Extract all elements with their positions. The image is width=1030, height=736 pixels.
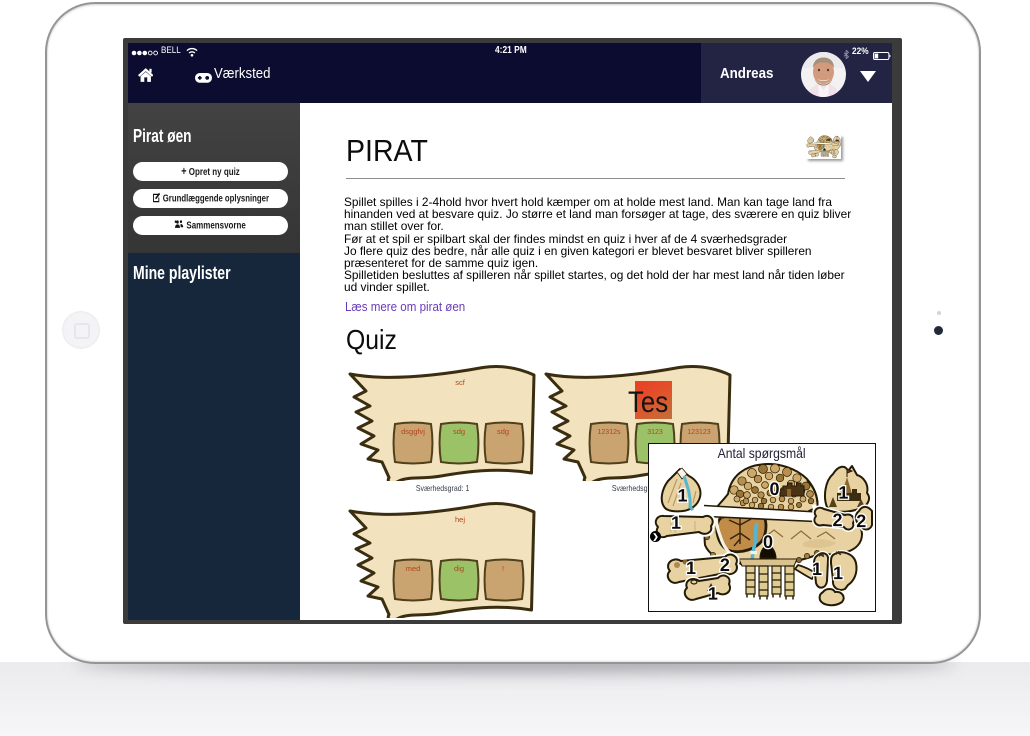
svg-text:sdg: sdg — [452, 427, 464, 436]
svg-text:sdg: sdg — [496, 427, 508, 436]
svg-text:!: ! — [501, 564, 503, 573]
svg-text:123123: 123123 — [687, 429, 710, 436]
svg-text:scf: scf — [455, 378, 466, 387]
svg-text:dig: dig — [453, 564, 463, 573]
svg-text:med: med — [405, 564, 420, 573]
svg-text:dsggfvj: dsggfvj — [401, 427, 425, 436]
svg-text:hej: hej — [454, 515, 464, 524]
svg-text:12312s: 12312s — [597, 429, 620, 436]
svg-text:3123: 3123 — [647, 429, 663, 436]
